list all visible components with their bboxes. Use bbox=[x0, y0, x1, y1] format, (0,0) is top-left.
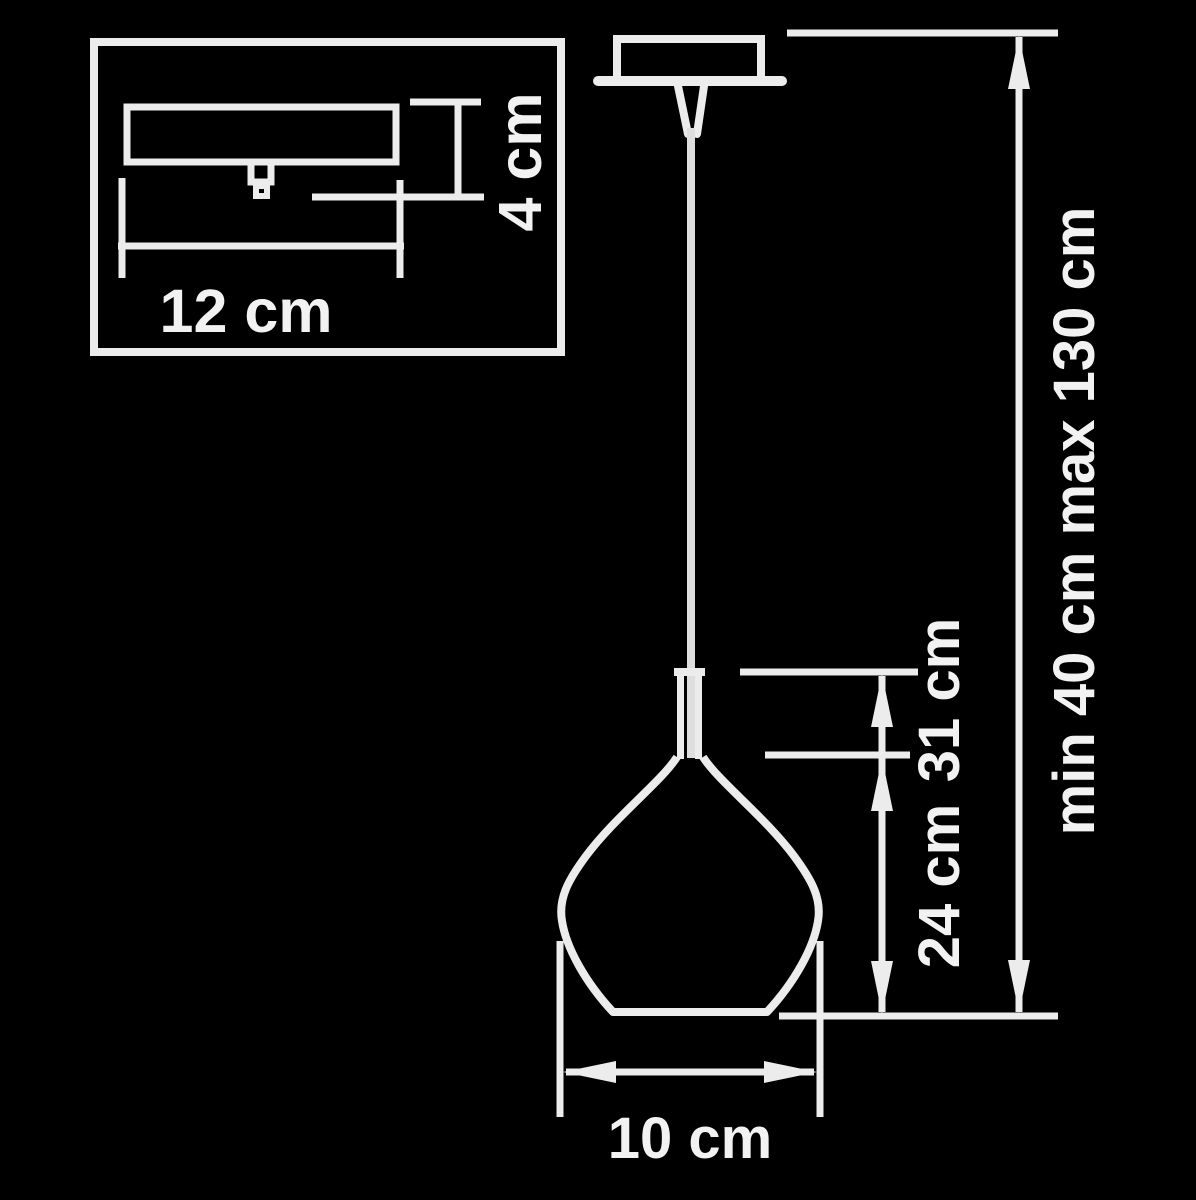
canopy-height-label: 4 cm bbox=[486, 92, 554, 231]
neck-wall-right bbox=[695, 672, 702, 759]
dimension-shade-heights: 31 cm 24 cm bbox=[740, 618, 972, 1014]
cord-grip-left bbox=[678, 86, 688, 134]
arrow-down bbox=[1008, 960, 1030, 1013]
diagram-canvas: 12 cm 4 cm bbox=[0, 0, 1196, 1200]
canopy-width-label: 12 cm bbox=[160, 277, 333, 345]
cord-grip bbox=[678, 86, 704, 134]
canopy-side-view bbox=[127, 107, 396, 162]
neck-wall-left bbox=[677, 672, 684, 759]
cord-grip-right bbox=[697, 86, 704, 134]
shade-body-outline bbox=[561, 757, 819, 1012]
shade-total-height-label: 31 cm bbox=[907, 618, 972, 782]
arrow-up-24 bbox=[871, 758, 893, 811]
shade-body-height-label: 24 cm bbox=[907, 804, 972, 968]
dimension-shade-diameter: 10 cm bbox=[560, 941, 820, 1171]
arrow-left bbox=[563, 1061, 616, 1083]
suspension-cord bbox=[687, 128, 695, 758]
shade-diameter-label: 10 cm bbox=[608, 1106, 772, 1171]
canopy-flange bbox=[593, 76, 787, 86]
canopy-body bbox=[617, 39, 761, 81]
arrow-up-31 bbox=[871, 674, 893, 727]
ceiling-canopy bbox=[593, 39, 787, 134]
inset-detail-box: 12 cm 4 cm bbox=[94, 42, 561, 352]
connector-upper bbox=[251, 165, 271, 182]
dimension-canopy-width: 12 cm bbox=[118, 178, 404, 345]
arrow-right bbox=[764, 1061, 817, 1083]
connector-lower bbox=[256, 186, 267, 196]
suspension-range-label: min 40 cm max 130 cm bbox=[1042, 207, 1107, 836]
arrow-down-shared bbox=[871, 961, 893, 1014]
canopy-connector bbox=[251, 165, 271, 196]
arrow-up bbox=[1008, 36, 1030, 89]
